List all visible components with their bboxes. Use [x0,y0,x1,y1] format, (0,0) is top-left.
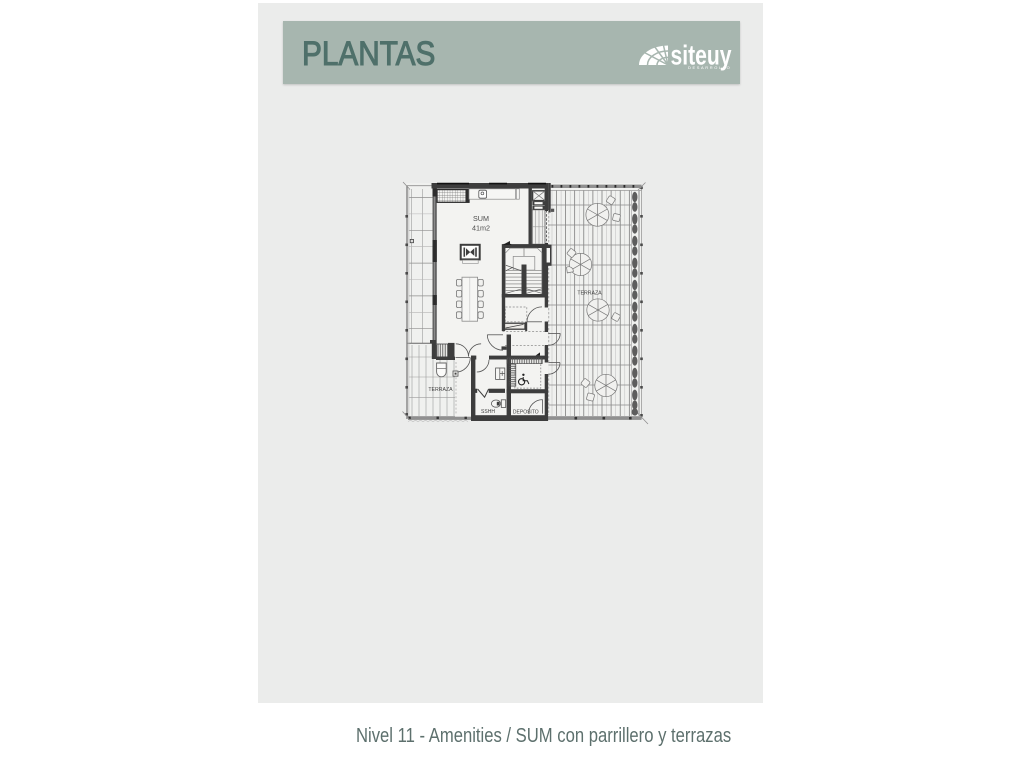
svg-text:DESARROLLO: DESARROLLO [688,65,731,70]
svg-text:DEPOSITO: DEPOSITO [513,409,539,415]
svg-text:TERRAZA: TERRAZA [428,387,453,393]
svg-text:41m2: 41m2 [472,224,490,233]
svg-text:SUM: SUM [473,214,489,223]
svg-text:SSHH: SSHH [481,409,495,415]
svg-text:TERRAZA: TERRAZA [577,291,602,297]
